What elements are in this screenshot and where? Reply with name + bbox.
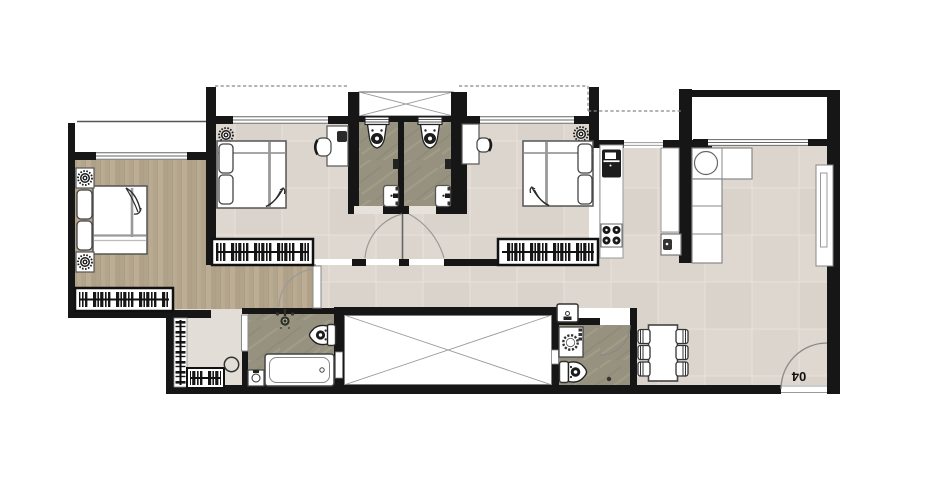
svg-text:04: 04 (791, 369, 806, 384)
